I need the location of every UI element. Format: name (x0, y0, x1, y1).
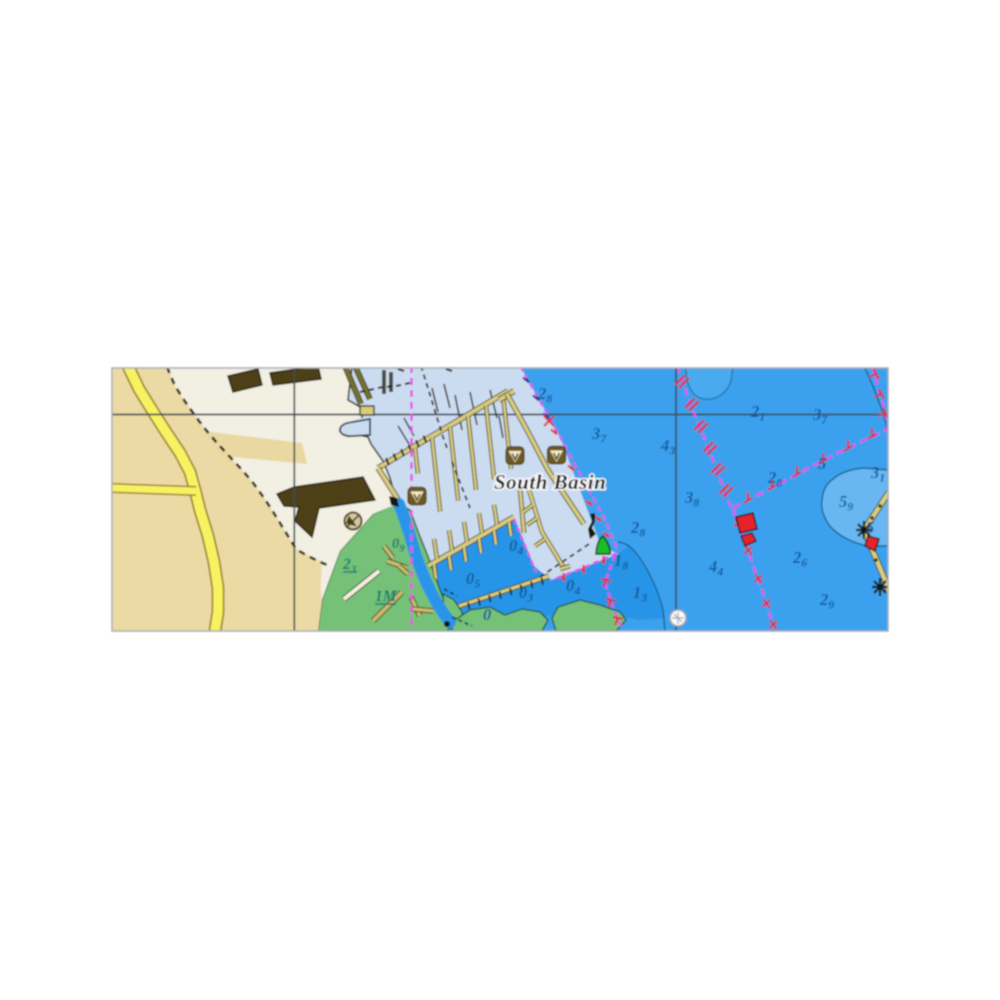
svg-text:South Basin: South Basin (494, 470, 606, 494)
svg-text:5: 5 (866, 518, 874, 537)
svg-text:0: 0 (483, 605, 491, 624)
svg-text:5: 5 (818, 454, 826, 473)
svg-text:1M: 1M (375, 588, 398, 605)
